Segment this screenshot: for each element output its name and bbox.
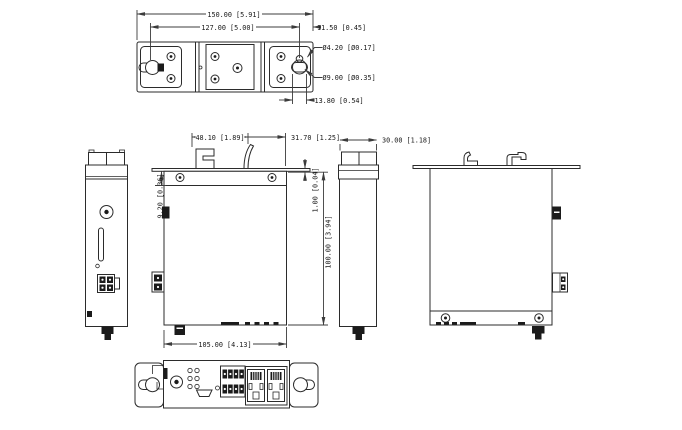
rear-view [413,152,580,340]
sim-card-slot [99,228,104,261]
screw [211,75,219,83]
din-clip-hook-right [507,153,526,166]
dim-clip-offset-label: 31.70 [1.25] [291,134,340,142]
front-view: 48.10 [1.89] 31.70 [1.25] 9.20 [0.36] 1.… [152,133,340,349]
bottom-connector [353,327,365,341]
dim-large-hole-label: Ø9.00 [Ø0.35] [323,74,376,82]
dim-overall-width-label: 150.00 [5.91] [207,11,260,19]
dim-clip-width-label: 48.10 [1.89] [195,134,244,142]
power-terminal-block [98,275,120,293]
screw [233,64,242,73]
keyhole-slot-left [139,378,160,392]
technical-drawing: 150.00 [5.91] 127.00 [5.00] 11.50 [0.45]… [0,0,682,430]
clip-tab [89,150,94,153]
flange-band [339,165,379,179]
keyhole-slot-right [292,56,308,75]
side-view-dimensions: 30.00 [1.18] [340,137,431,151]
rear-body [430,169,552,326]
keyhole-slot-right [294,378,315,392]
side-body [340,179,377,327]
side-body [86,179,128,327]
dim-hole-spacing-label: 127.00 [5.00] [201,24,254,32]
screw [277,53,285,61]
side-notch [87,311,92,317]
top-view: 150.00 [5.91] 127.00 [5.00] 11.50 [0.45]… [137,10,376,105]
dim-flange-thickness-label: 1.00 [0.04] [312,167,320,212]
left-side-view [86,150,128,340]
din-clip-release-lever [244,145,254,169]
dim-body-width-label: 105.00 [4.13] [198,341,251,349]
right-side-view: 30.00 [1.18] [339,137,432,340]
keyhole-slot-left [139,61,164,75]
top-view-dimensions: 150.00 [5.91] 127.00 [5.00] 11.50 [0.45]… [137,10,376,105]
screw [277,75,285,83]
bottom-connector [102,327,114,341]
terminal-block-side [553,273,568,292]
edge-connector-mark [164,368,168,379]
bottom-connector [532,326,545,340]
dim-small-hole-label: Ø4.20 [Ø0.17] [323,44,376,52]
screw [167,53,175,61]
screw [167,75,175,83]
sim-eject-hole [96,264,100,268]
dim-edge-offset-label: 11.50 [0.45] [317,24,366,32]
din-rail-clip-hook [196,149,214,169]
terminal-block-edge [152,272,164,292]
dim-top-recess-label: 9.20 [0.36] [157,173,165,218]
screw [211,53,219,61]
clip-tab [120,150,125,153]
bottom-usb-connector [175,326,186,336]
antenna-connector [100,206,113,219]
dim-body-height-label: 100.00 [3.94] [325,215,333,268]
dimension-drawing-page: 150.00 [5.91] 127.00 [5.00] 11.50 [0.45]… [0,0,682,430]
din-clip-hook-left [464,152,478,166]
front-body [164,171,287,325]
antenna-connector-side [553,207,562,220]
dim-depth-label: 30.00 [1.18] [382,137,431,145]
dim-slot-length-label: 13.80 [0.54] [315,97,364,105]
bottom-view [135,361,318,409]
right-mount-bracket [270,47,311,88]
